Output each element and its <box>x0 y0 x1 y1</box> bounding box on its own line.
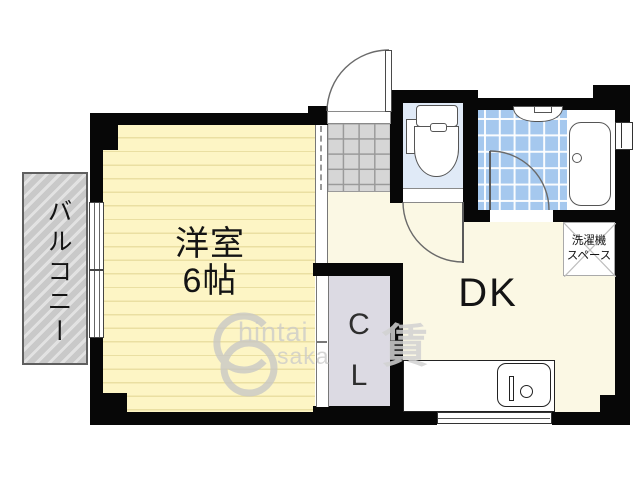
closet-sliding-door <box>316 276 329 407</box>
window-sash-divider <box>90 269 103 271</box>
entrance-doorway <box>327 111 391 124</box>
watermark-kanji: 賃 <box>382 310 428 376</box>
pipe-space-box <box>615 122 633 150</box>
laundry-label-line2: スペース <box>564 249 614 264</box>
kitchen-faucet <box>509 376 514 401</box>
wall-segment <box>90 113 118 150</box>
wall-segment <box>478 210 490 222</box>
wall-segment <box>308 106 328 125</box>
toilet-door-leaf <box>462 202 464 263</box>
dk-label: DK <box>446 271 530 316</box>
laundry-space-label: 洗濯機 スペース <box>564 223 614 264</box>
bathtub-fixture <box>569 122 611 206</box>
western-room-size: 6帖 <box>144 263 276 300</box>
wall-segment <box>90 113 315 125</box>
kitchen-drain <box>520 385 533 398</box>
toilet-doorway <box>403 188 463 203</box>
wall-segment <box>313 263 403 276</box>
entryway-boundary-dashed-line <box>320 126 322 190</box>
entryway-tile-floor <box>327 123 390 192</box>
bathroom-tile-floor <box>478 110 567 210</box>
wall-segment <box>90 412 437 425</box>
bathroom-door-leaf <box>489 151 491 210</box>
wall-segment <box>313 406 403 413</box>
bathroom-doorway <box>490 210 553 222</box>
wall-segment <box>90 150 103 203</box>
bathtub-drain <box>572 153 582 163</box>
entrance-door-leaf <box>385 50 392 112</box>
wall-segment <box>90 337 103 397</box>
balcony-window <box>89 202 104 338</box>
balcony-label: バルコニー <box>40 183 76 363</box>
watermark-text-bottom: saka <box>277 343 330 370</box>
bath-washbasin-faucet <box>534 106 552 113</box>
floor-plan: 洗濯機 スペース 洋室 6帖 DK C L バルコニー hintai saka … <box>0 0 640 480</box>
laundry-label-line1: 洗濯機 <box>564 234 614 249</box>
laundry-space-box: 洗濯機 スペース <box>563 222 615 276</box>
kitchen-window <box>437 412 552 424</box>
window-pane-line <box>438 418 550 419</box>
closet-label-line2: L <box>340 350 378 401</box>
closet-label-line1: C <box>340 299 378 350</box>
pipe-space-divider <box>621 123 622 148</box>
western-room-name: 洋室 <box>144 226 276 263</box>
wall-segment <box>553 210 617 222</box>
wall-segment <box>463 90 478 222</box>
wall-segment <box>593 85 630 110</box>
wall-segment <box>615 110 630 412</box>
toilet-flush-handle <box>430 123 447 132</box>
closet-label: C L <box>340 299 378 401</box>
entrance-door-arc <box>327 50 389 111</box>
western-room-label: 洋室 6帖 <box>144 226 276 300</box>
